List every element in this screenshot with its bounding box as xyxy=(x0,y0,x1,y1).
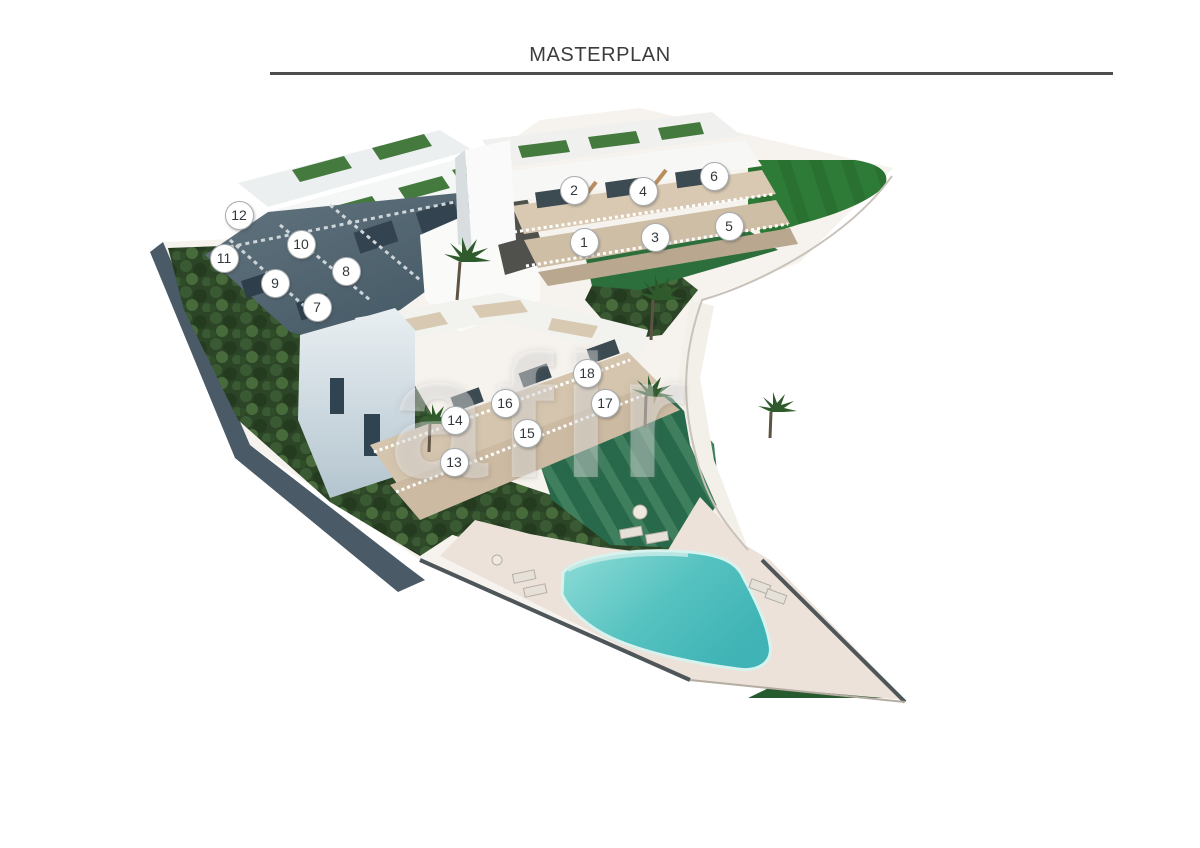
unit-marker-13[interactable]: 13 xyxy=(440,448,469,477)
unit-marker-1[interactable]: 1 xyxy=(570,228,599,257)
masterplan-rendering xyxy=(0,0,1200,848)
unit-marker-2[interactable]: 2 xyxy=(560,176,589,205)
palm-icon xyxy=(770,412,771,438)
swimming-pool xyxy=(562,551,770,670)
unit-marker-15[interactable]: 15 xyxy=(513,419,542,448)
unit-marker-10[interactable]: 10 xyxy=(287,230,316,259)
palm-icon xyxy=(429,424,430,452)
unit-marker-7[interactable]: 7 xyxy=(303,293,332,322)
unit-marker-11[interactable]: 11 xyxy=(210,244,239,273)
unit-marker-8[interactable]: 8 xyxy=(332,257,361,286)
unit-marker-14[interactable]: 14 xyxy=(441,406,470,435)
unit-marker-12[interactable]: 12 xyxy=(225,201,254,230)
unit-marker-18[interactable]: 18 xyxy=(573,359,602,388)
unit-marker-9[interactable]: 9 xyxy=(261,269,290,298)
unit-marker-4[interactable]: 4 xyxy=(629,177,658,206)
unit-marker-5[interactable]: 5 xyxy=(715,212,744,241)
unit-marker-6[interactable]: 6 xyxy=(700,162,729,191)
palm-icon xyxy=(645,396,646,428)
unit-marker-17[interactable]: 17 xyxy=(591,389,620,418)
masterplan-page: MASTERPLAN xyxy=(0,0,1200,848)
palm-icon xyxy=(651,300,653,340)
unit-marker-3[interactable]: 3 xyxy=(641,223,670,252)
unit-marker-16[interactable]: 16 xyxy=(491,389,520,418)
